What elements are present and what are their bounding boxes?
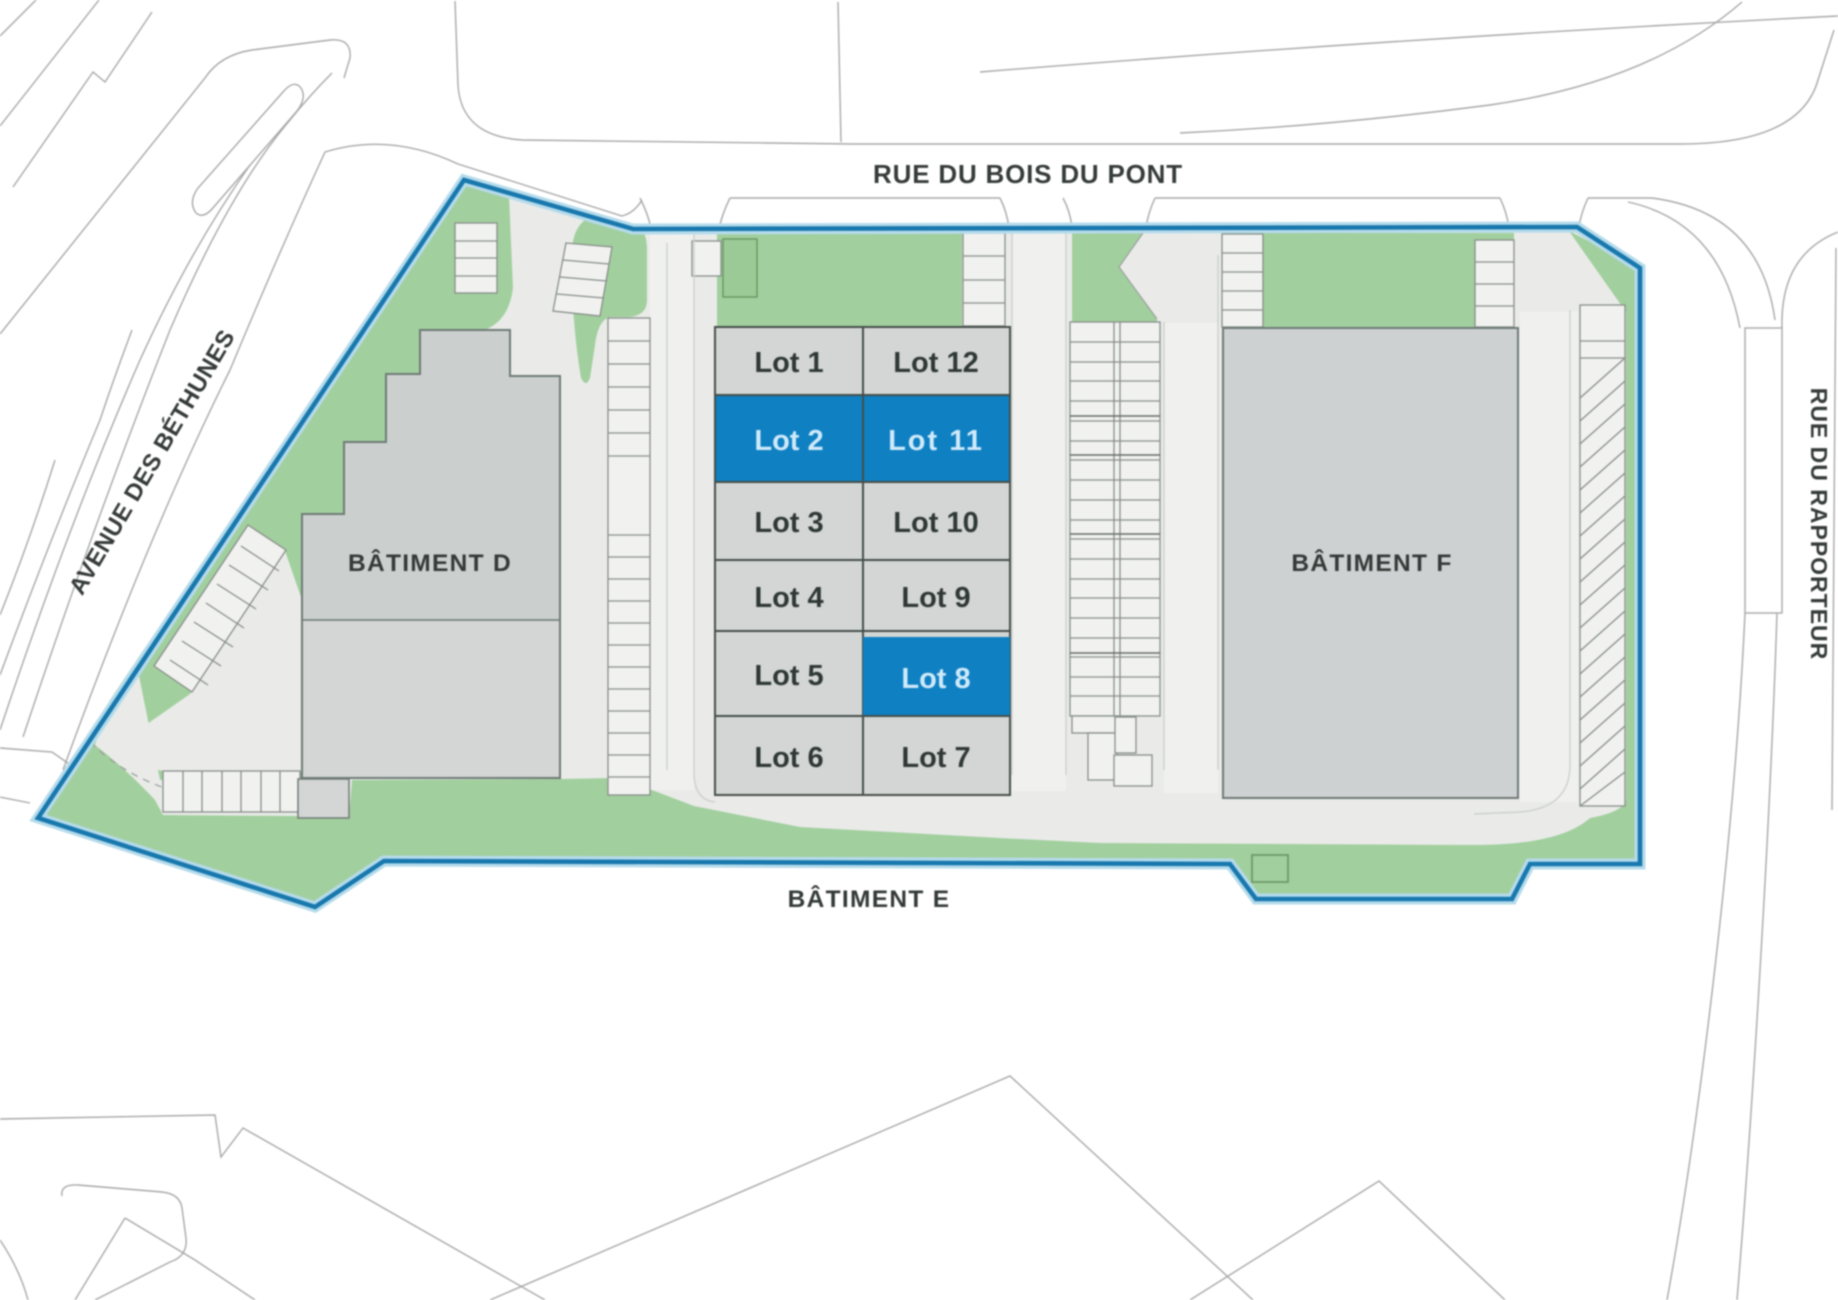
svg-text:Lot 5: Lot 5 [754, 660, 823, 692]
svg-text:Lot 12: Lot 12 [893, 347, 978, 379]
svg-text:RUE DU RAPPORTEUR: RUE DU RAPPORTEUR [1806, 388, 1832, 661]
svg-text:Lot 1: Lot 1 [754, 347, 823, 379]
svg-text:BÂTIMENT D: BÂTIMENT D [348, 549, 512, 577]
svg-text:Lot 8: Lot 8 [901, 663, 970, 695]
svg-text:RUE DU BOIS DU PONT: RUE DU BOIS DU PONT [873, 159, 1183, 189]
svg-text:BÂTIMENT F: BÂTIMENT F [1291, 549, 1452, 577]
svg-text:Lot 11: Lot 11 [888, 425, 984, 457]
svg-text:Lot 3: Lot 3 [754, 507, 823, 539]
svg-text:Lot 9: Lot 9 [901, 582, 970, 614]
svg-text:Lot 4: Lot 4 [754, 582, 823, 614]
svg-text:Lot 10: Lot 10 [893, 507, 978, 539]
svg-text:BÂTIMENT E: BÂTIMENT E [788, 885, 951, 913]
svg-text:Lot 6: Lot 6 [754, 742, 823, 774]
svg-text:Lot 7: Lot 7 [901, 742, 970, 774]
svg-text:Lot 2: Lot 2 [754, 425, 823, 457]
